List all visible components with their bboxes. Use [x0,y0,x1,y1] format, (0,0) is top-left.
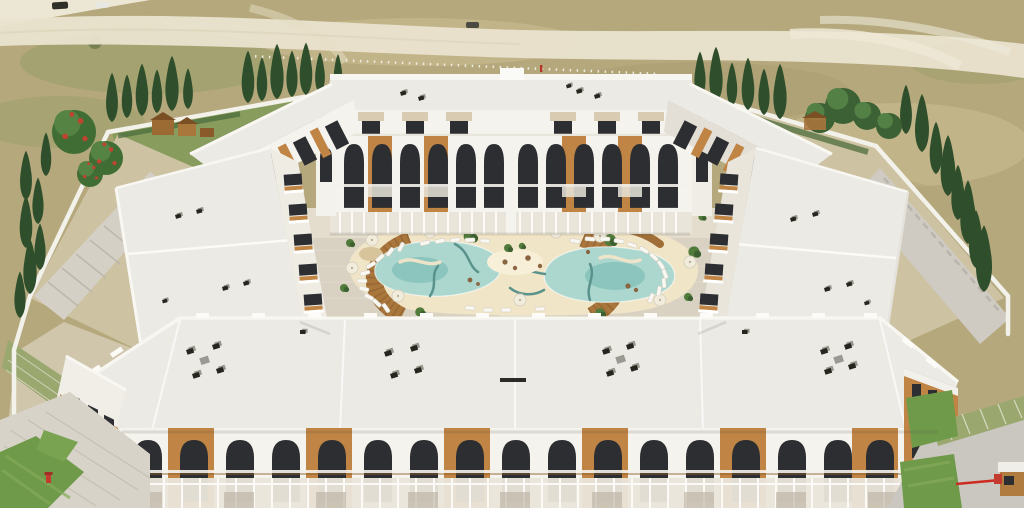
center-pier [506,136,516,234]
fruit-tree [77,161,103,187]
van [96,2,109,9]
car [466,22,479,28]
barrier-post [994,474,1002,484]
front-balcony-slab [120,470,940,473]
fence-red-marker [540,65,542,72]
fruit-tree [52,110,96,154]
pine-tree [876,113,902,139]
building-rear [316,68,712,234]
aerial-render [0,0,1024,508]
building-front [56,313,958,508]
ridge-vent [500,378,526,382]
front-balcony-rail [120,473,940,475]
pool-island [487,249,543,275]
rear-roof-terraces [340,110,688,136]
terrace-interiors [132,492,898,508]
car [52,1,68,9]
